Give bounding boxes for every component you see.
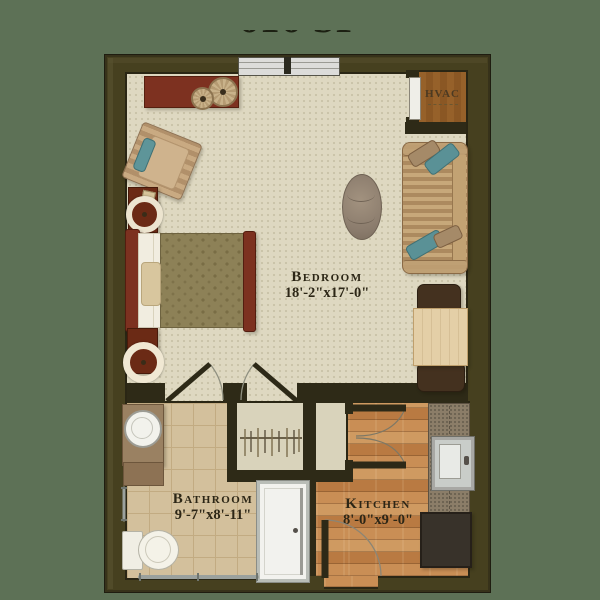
kitchen-sink <box>432 437 474 490</box>
vanity-cabinet <box>123 462 164 486</box>
bedroom-dimensions: 18'-2"x17'-0" <box>262 285 392 302</box>
pantry-floor <box>316 403 348 472</box>
floor-plan: 616 SF <box>0 0 600 600</box>
hvac-label: HVAC <box>419 88 466 100</box>
shower-door <box>300 488 303 575</box>
bed-comforter <box>160 233 246 328</box>
table-lamp-bottom <box>123 342 164 383</box>
wall-bedroom-bath-left <box>127 383 165 403</box>
sofa-back-cushion <box>452 155 466 260</box>
plant-center <box>200 96 206 102</box>
wall-bedroom-pier <box>223 383 247 403</box>
shower-door-handle <box>293 528 298 533</box>
bedroom-name: Bedroom <box>262 270 392 285</box>
lamp-finial <box>142 212 147 217</box>
vanity-sink <box>124 410 162 448</box>
sofa-armrest-bottom <box>403 260 467 273</box>
title-clip-cover <box>0 0 600 30</box>
bed-footboard <box>243 231 256 332</box>
bedroom-label: Bedroom 18'-2"x17'-0" <box>262 270 392 302</box>
bed-pillow <box>141 262 161 306</box>
bathroom-label: Bathroom 9'-7"x8'-11" <box>148 492 278 524</box>
kitchen-label: Kitchen 8'-0"x9'-0" <box>318 497 438 529</box>
window-mullion <box>284 57 291 74</box>
sink-faucet <box>464 456 469 465</box>
dining-table <box>413 308 468 366</box>
ottoman-seam <box>347 187 375 202</box>
ottoman-seam <box>347 209 375 224</box>
wall-bath-closet <box>227 403 237 478</box>
kitchen-name: Kitchen <box>318 497 438 512</box>
wall-highlight-left <box>108 58 113 589</box>
hvac-dashed-line <box>428 104 458 105</box>
ottoman <box>342 174 382 240</box>
toilet-bowl <box>138 530 179 570</box>
sink-basin <box>439 444 461 479</box>
wall-pantry-stub-top <box>345 403 353 414</box>
wall-pantry-stub-bottom <box>345 460 353 472</box>
closet-floor <box>237 403 303 472</box>
toilet-seat <box>145 536 171 563</box>
lamp-finial <box>141 360 146 365</box>
plant-center <box>220 89 226 95</box>
bathroom-dimensions: 9'-7"x8'-11" <box>148 507 278 524</box>
potted-plant-small <box>191 87 214 110</box>
vanity-sink-bowl <box>131 417 153 439</box>
kitchen-dimensions: 8'-0"x9'-0" <box>318 512 438 529</box>
dining-chair-bottom <box>417 362 465 392</box>
table-lamp-top <box>126 196 163 233</box>
entry-threshold <box>324 576 378 589</box>
bathroom-name: Bathroom <box>148 492 278 507</box>
